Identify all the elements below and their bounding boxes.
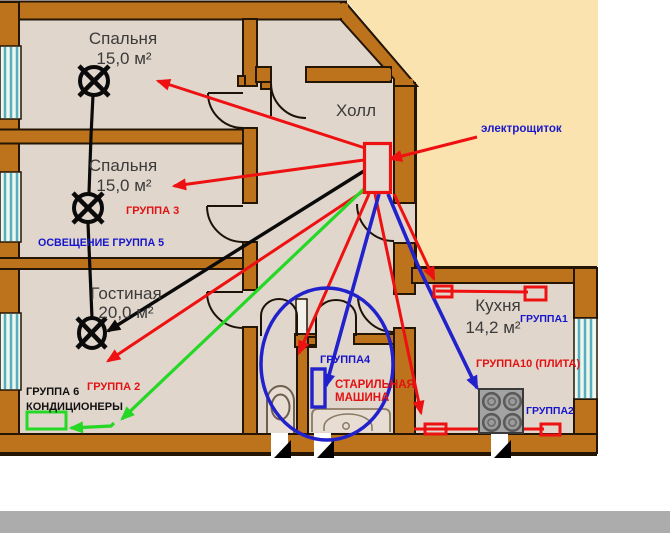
svg-text:ГРУППА 2: ГРУППА 2 [87, 381, 140, 393]
svg-text:Холл: Холл [336, 101, 376, 120]
svg-text:ГРУППА2: ГРУППА2 [526, 405, 574, 417]
svg-text:Спальня: Спальня [89, 29, 157, 48]
svg-text:Спальня: Спальня [89, 156, 157, 175]
svg-text:ОСВЕЩЕНИЕ ГРУППА 5: ОСВЕЩЕНИЕ ГРУППА 5 [38, 237, 164, 249]
svg-text:14,2 м²: 14,2 м² [465, 318, 520, 337]
svg-text:15,0 м²: 15,0 м² [96, 49, 151, 68]
svg-text:ГРУППА 3: ГРУППА 3 [126, 205, 179, 217]
svg-text:15,0 м²: 15,0 м² [96, 176, 151, 195]
svg-text:СТАРИЛЬНАЯ: СТАРИЛЬНАЯ [335, 379, 415, 391]
svg-text:Кухня: Кухня [475, 296, 521, 315]
svg-text:20,0 м²: 20,0 м² [98, 303, 153, 322]
svg-text:ГРУППА 6: ГРУППА 6 [26, 386, 79, 398]
svg-text:ГРУППА1: ГРУППА1 [520, 313, 568, 325]
svg-text:ГРУППА10 (ПЛИТА): ГРУППА10 (ПЛИТА) [476, 358, 580, 370]
svg-text:Гостиная: Гостиная [90, 284, 161, 303]
svg-text:электрощиток: электрощиток [481, 122, 562, 135]
svg-text:МАШИНА: МАШИНА [335, 392, 389, 404]
svg-text:КОНДИЦИОНЕРЫ: КОНДИЦИОНЕРЫ [26, 401, 123, 413]
svg-text:ГРУППА4: ГРУППА4 [320, 354, 371, 366]
